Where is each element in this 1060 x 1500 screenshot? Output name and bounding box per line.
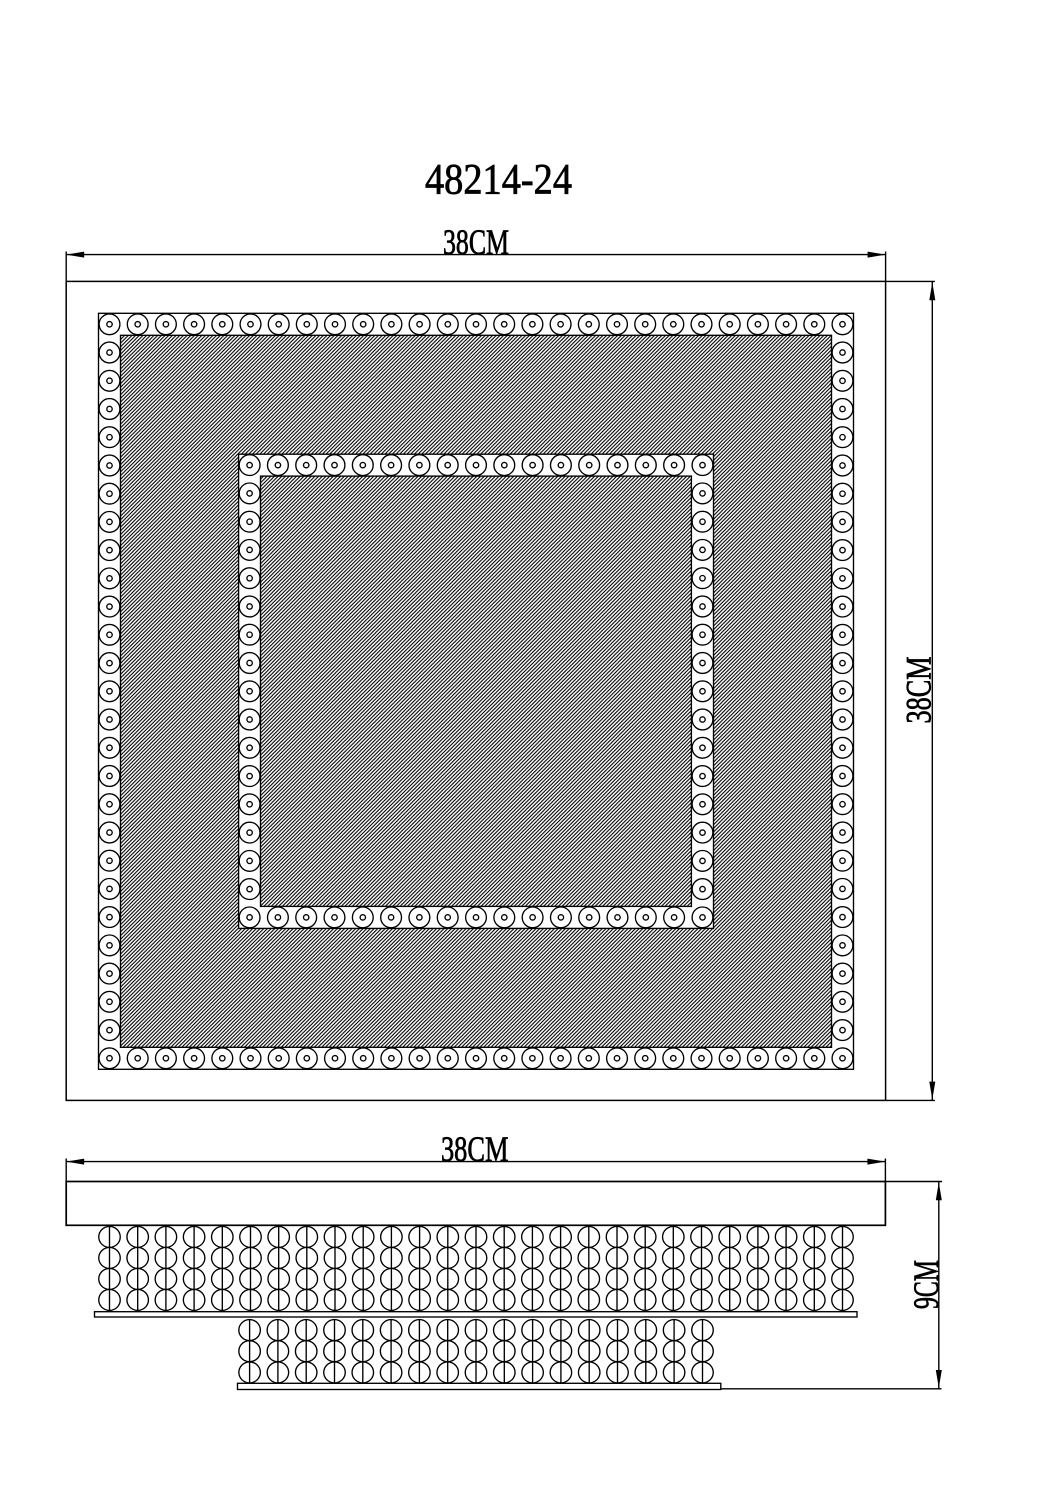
svg-text:38CM: 38CM xyxy=(443,222,509,262)
svg-text:9CM: 9CM xyxy=(906,1260,946,1309)
svg-text:48214-24: 48214-24 xyxy=(425,156,572,204)
svg-text:38CM: 38CM xyxy=(899,657,939,724)
svg-text:38CM: 38CM xyxy=(441,1129,509,1169)
